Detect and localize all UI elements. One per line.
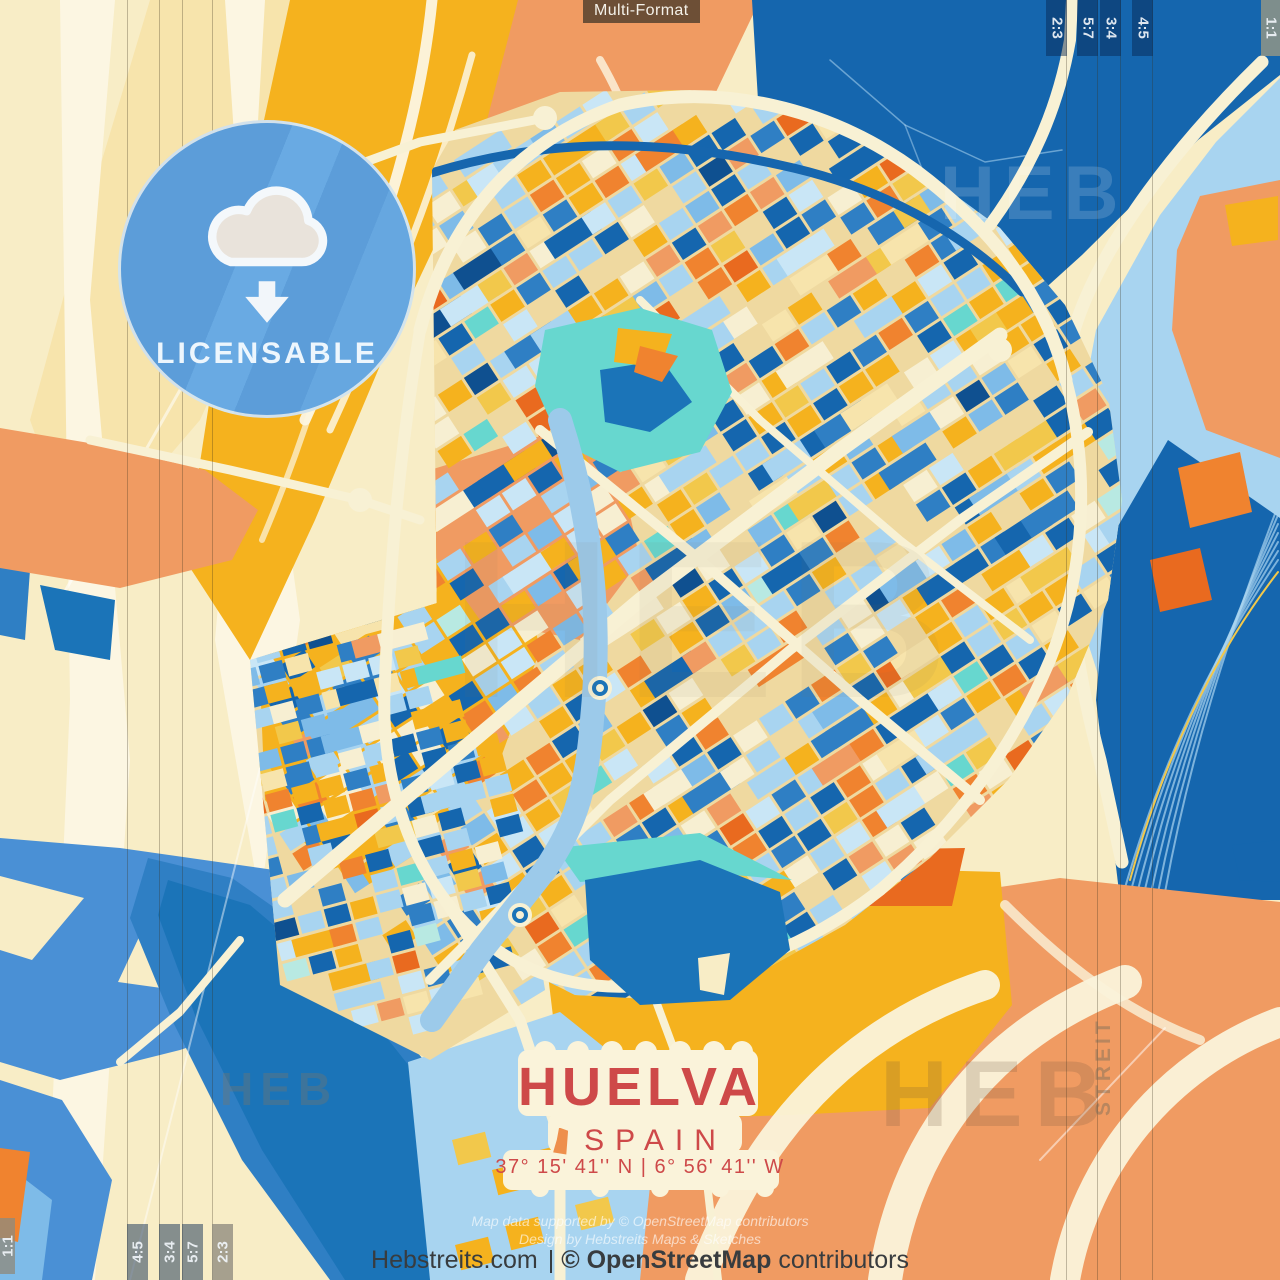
credit-line-design: Design by Hebstreits Maps & Sketches	[0, 1231, 1280, 1247]
country-row: SPAIN	[553, 1124, 727, 1158]
poster-canvas: HEB HEB HEB HEB STREIT Multi-Format 2:3 …	[0, 0, 1280, 1280]
download-arrow-icon	[238, 281, 296, 323]
footer-attribution: Hebstreits.com|© OpenStreetMapcontributo…	[0, 1246, 1280, 1275]
credit-line-osm: Map data supported by © OpenStreetMap co…	[0, 1213, 1280, 1229]
coordinates-label: 37° 15' 41'' N | 6° 56' 41'' W	[495, 1156, 784, 1179]
ratio-marker-5-7-top: 5:7	[1077, 0, 1098, 56]
cloud-download-icon	[192, 173, 342, 279]
footer-osm: © OpenStreetMap	[561, 1246, 771, 1274]
licensable-badge[interactable]: LICENSABLE	[118, 120, 416, 418]
ratio-marker-3-4-top: 3:4	[1100, 0, 1121, 56]
country-label: SPAIN	[584, 1124, 727, 1158]
footer-site: Hebstreits.com	[371, 1246, 538, 1274]
badge-label: LICENSABLE	[156, 337, 378, 371]
footer-separator: |	[548, 1246, 555, 1274]
ratio-marker-1-1-top: 1:1	[1261, 0, 1280, 56]
ratio-marker-4-5-top: 4:5	[1132, 0, 1153, 56]
ratio-marker-2-3-top: 2:3	[1046, 0, 1067, 56]
format-label: Multi-Format	[583, 0, 700, 23]
city-title: HUELVA	[518, 1056, 762, 1118]
map-fragment-icon	[553, 1128, 568, 1155]
footer-suffix: contributors	[778, 1246, 909, 1274]
